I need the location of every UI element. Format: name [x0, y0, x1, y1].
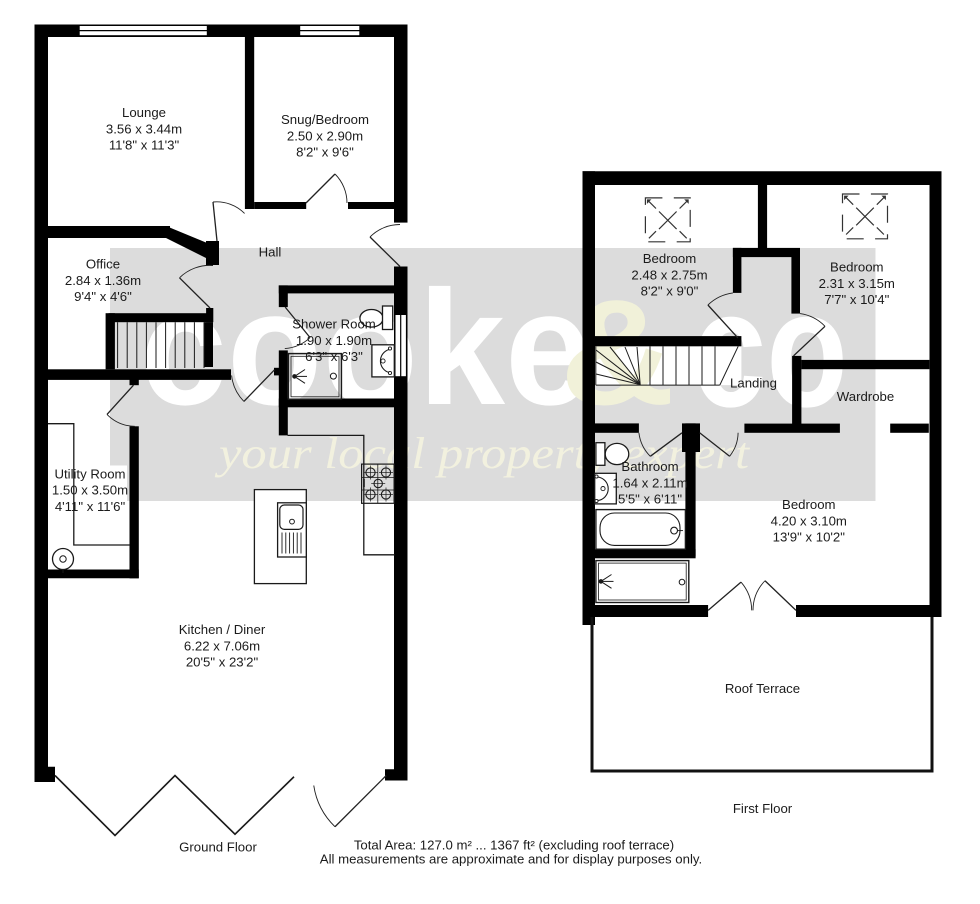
- svg-text:Utility Room: Utility Room: [54, 467, 125, 482]
- svg-text:Hall: Hall: [259, 245, 282, 260]
- svg-text:Total Area: 127.0 m² ... 1367: Total Area: 127.0 m² ... 1367 ft² (exclu…: [354, 838, 674, 853]
- svg-text:2.50 x 2.90m: 2.50 x 2.90m: [287, 128, 363, 143]
- svg-text:5'5" x 6'11": 5'5" x 6'11": [618, 492, 682, 507]
- svg-text:2.31 x 3.15m: 2.31 x 3.15m: [819, 276, 895, 291]
- svg-text:20'5" x 23'2": 20'5" x 23'2": [186, 655, 259, 670]
- svg-text:7'7" x 10'4": 7'7" x 10'4": [824, 292, 889, 307]
- svg-text:6'3" x 6'3": 6'3" x 6'3": [305, 349, 363, 364]
- svg-text:Ground Floor: Ground Floor: [179, 840, 257, 855]
- svg-text:Shower Room: Shower Room: [292, 317, 376, 332]
- svg-text:13'9" x 10'2": 13'9" x 10'2": [773, 530, 846, 545]
- svg-text:2.48 x 2.75m: 2.48 x 2.75m: [631, 267, 707, 282]
- svg-text:Snug/Bedroom: Snug/Bedroom: [281, 112, 369, 127]
- svg-text:Office: Office: [86, 257, 120, 272]
- svg-text:Bedroom: Bedroom: [643, 251, 697, 266]
- svg-text:Bedroom: Bedroom: [782, 497, 836, 512]
- svg-text:3.56 x 3.44m: 3.56 x 3.44m: [106, 121, 182, 136]
- svg-text:11'8" x 11'3": 11'8" x 11'3": [109, 138, 180, 153]
- svg-text:Kitchen / Diner: Kitchen / Diner: [179, 622, 266, 637]
- svg-text:8'2" x 9'6": 8'2" x 9'6": [296, 145, 354, 160]
- svg-text:4'11" x 11'6": 4'11" x 11'6": [55, 499, 126, 514]
- svg-text:1.50 x 3.50m: 1.50 x 3.50m: [52, 483, 128, 498]
- svg-text:1.64 x 2.11m: 1.64 x 2.11m: [612, 475, 687, 490]
- svg-text:Bathroom: Bathroom: [621, 459, 678, 474]
- svg-text:6.22 x 7.06m: 6.22 x 7.06m: [184, 638, 260, 653]
- svg-text:First Floor: First Floor: [733, 801, 793, 816]
- svg-text:Lounge: Lounge: [122, 105, 166, 120]
- svg-text:1.90 x 1.90m: 1.90 x 1.90m: [296, 333, 372, 348]
- svg-text:Bedroom: Bedroom: [830, 260, 884, 275]
- svg-text:Landing: Landing: [730, 376, 777, 391]
- svg-text:Roof Terrace: Roof Terrace: [725, 681, 800, 696]
- svg-text:2.84 x 1.36m: 2.84 x 1.36m: [65, 273, 141, 288]
- svg-text:4.20 x 3.10m: 4.20 x 3.10m: [771, 513, 847, 528]
- svg-text:Wardrobe: Wardrobe: [837, 389, 894, 404]
- svg-text:All measurements are approxima: All measurements are approximate and for…: [320, 852, 702, 867]
- svg-text:9'4" x 4'6": 9'4" x 4'6": [74, 289, 132, 304]
- svg-text:8'2" x 9'0": 8'2" x 9'0": [641, 284, 699, 299]
